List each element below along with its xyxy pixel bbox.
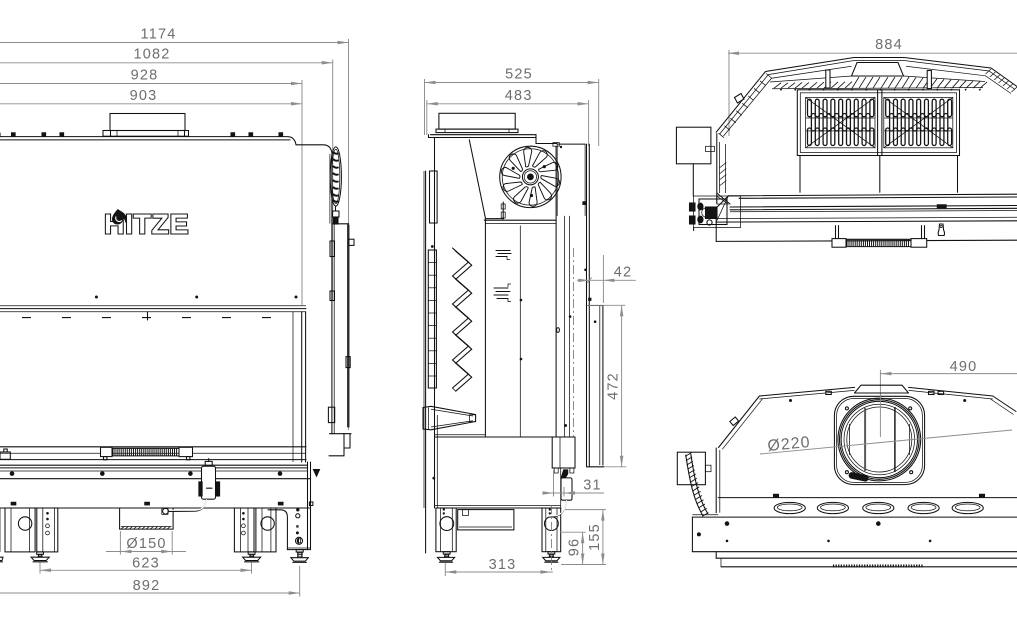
svg-text:42: 42 <box>614 265 633 281</box>
svg-text:472: 472 <box>606 372 622 400</box>
svg-text:Ø150: Ø150 <box>126 536 166 552</box>
svg-text:884: 884 <box>875 37 903 53</box>
svg-text:155: 155 <box>587 523 603 551</box>
svg-text:1174: 1174 <box>141 27 177 43</box>
svg-text:96: 96 <box>567 538 583 557</box>
svg-text:525: 525 <box>505 67 533 83</box>
svg-text:1082: 1082 <box>133 47 170 63</box>
svg-text:31: 31 <box>583 478 602 494</box>
svg-text:892: 892 <box>133 578 161 594</box>
svg-text:313: 313 <box>489 557 517 573</box>
svg-text:623: 623 <box>132 555 160 571</box>
svg-text:903: 903 <box>130 88 158 104</box>
svg-text:483: 483 <box>505 88 533 104</box>
svg-text:490: 490 <box>950 359 978 375</box>
svg-text:928: 928 <box>131 68 159 84</box>
